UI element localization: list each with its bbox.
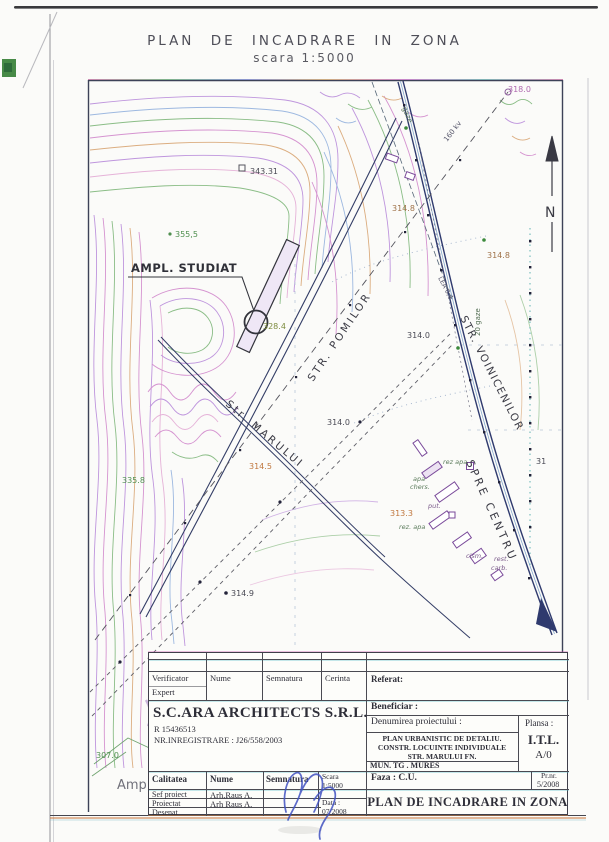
tb-line bbox=[149, 659, 569, 660]
tb-line bbox=[263, 771, 264, 816]
elev-328: 328.4 bbox=[263, 322, 286, 331]
elev-3133: 313.3 bbox=[390, 509, 413, 518]
poi-chers: chers. bbox=[410, 483, 430, 491]
elev-3148b: 314.8 bbox=[487, 251, 510, 260]
tb-plansa-rev: A/0 bbox=[518, 750, 569, 762]
site-parcel bbox=[237, 240, 300, 353]
elev-3149: 314.9 bbox=[231, 589, 254, 598]
tb-line bbox=[206, 771, 207, 816]
tb-company: S.C.ARA ARCHITECTS S.R.L. bbox=[153, 706, 368, 722]
scanned-sheet: PLAN DE INCADRARE IN ZONA scara 1:5000 bbox=[0, 0, 609, 842]
tb-nume-h: Nume bbox=[210, 674, 231, 683]
elev-3140b: 314.0 bbox=[327, 418, 350, 427]
elev-318: 318.0 bbox=[508, 85, 531, 94]
tb-beneficiar: Beneficiar : bbox=[371, 703, 418, 713]
north-label: N bbox=[545, 205, 555, 221]
tb-referat: Referat: bbox=[371, 675, 403, 684]
elev-3140a: 314.0 bbox=[407, 331, 430, 340]
poi-carb: carb. bbox=[491, 564, 507, 572]
poi-rez-apa: rez apa bbox=[443, 458, 467, 466]
signature bbox=[272, 760, 362, 840]
elev-3070: 307.0 bbox=[96, 751, 119, 760]
tb-denumirea: Denumirea proiectului : bbox=[371, 718, 462, 728]
poi-put: put. bbox=[427, 502, 441, 510]
tb-nume2: Nume bbox=[210, 775, 233, 784]
point-markers bbox=[118, 104, 531, 664]
tb-proj1: PLAN URBANISTIC DE DETALIU. bbox=[367, 735, 517, 743]
tb-line bbox=[262, 653, 263, 700]
tb-line bbox=[366, 715, 569, 716]
street-pomilor-label: STR. POMILOR bbox=[306, 290, 374, 383]
poi-rez-apa2: rez. apa bbox=[399, 523, 425, 531]
studied-site bbox=[128, 240, 299, 353]
tb-line bbox=[531, 771, 532, 789]
tb-proj4: MUN. TG . MURES bbox=[370, 762, 439, 770]
elev-3358: 335.8 bbox=[122, 476, 145, 485]
elev-31: 31 bbox=[536, 457, 546, 466]
scan-top-smear bbox=[14, 6, 598, 9]
site-label: AMPL. STUDIAT bbox=[131, 261, 237, 275]
page-scale: scara 1:5000 bbox=[0, 51, 609, 65]
tb-line bbox=[366, 732, 518, 733]
elev-355: 355,5 bbox=[175, 230, 198, 239]
tb-calitatea: Calitatea bbox=[152, 775, 187, 784]
elev-343: 343.31 bbox=[250, 167, 278, 176]
cut-off-text: Amp bbox=[117, 778, 147, 793]
tb-line bbox=[321, 653, 322, 700]
tb-expert: Expert bbox=[152, 688, 175, 697]
poi-apa: apa bbox=[413, 475, 425, 483]
page-heading: PLAN DE INCADRARE IN ZONA scara 1:5000 bbox=[0, 33, 609, 65]
grid-guides bbox=[295, 255, 562, 645]
site-leader bbox=[128, 277, 254, 311]
tb-plansa-label: Plansa : bbox=[525, 719, 553, 728]
gaze-20-label: 20 gaze bbox=[474, 308, 482, 336]
tb-prnr-label: Pr.nr. bbox=[541, 772, 557, 780]
tb-semnatura-h: Semnatura bbox=[266, 674, 302, 683]
kv-label: 160 kv bbox=[442, 120, 463, 144]
tb-cerinta-h: Cerinta bbox=[325, 674, 350, 683]
north-arrow: N bbox=[545, 136, 558, 252]
page-title: PLAN DE INCADRARE IN ZONA bbox=[0, 33, 609, 49]
tb-drawing-title: PLAN DE INCADRARE IN ZONA bbox=[366, 796, 569, 809]
tb-name-proiectat: Arh Raus A. bbox=[210, 800, 252, 809]
poi-rest: rest. bbox=[494, 555, 509, 563]
elev-3148a: 314.8 bbox=[392, 204, 415, 213]
poi-cism: cism. bbox=[466, 552, 483, 560]
tb-verificator: Verificator bbox=[152, 674, 188, 683]
tb-plansa-code: I.T.L. bbox=[518, 733, 569, 747]
tb-reg1: R 15436513 bbox=[154, 725, 196, 734]
tb-proj2: CONSTR. LOCUINTE INDIVIDUALE bbox=[367, 744, 517, 752]
tb-reg2: NR.INREGISTRARE : J26/558/2003 bbox=[154, 736, 282, 745]
street-voinicenilor-label: STR. VOINICENILOR bbox=[457, 314, 526, 433]
elev-3145: 314.5 bbox=[249, 462, 272, 471]
tb-proj3: STR. MARULUI FN. bbox=[367, 753, 517, 761]
power-line bbox=[95, 92, 508, 640]
tb-faza: Faza : C.U. bbox=[371, 774, 417, 784]
roads bbox=[90, 81, 557, 716]
tb-role-desenat: Desenat bbox=[152, 809, 178, 817]
tb-prnr-value: 5/2008 bbox=[537, 781, 559, 789]
tb-line bbox=[149, 671, 569, 672]
scan-color-fringe bbox=[88, 79, 563, 80]
tb-line bbox=[206, 653, 207, 700]
tb-line bbox=[149, 700, 569, 701]
